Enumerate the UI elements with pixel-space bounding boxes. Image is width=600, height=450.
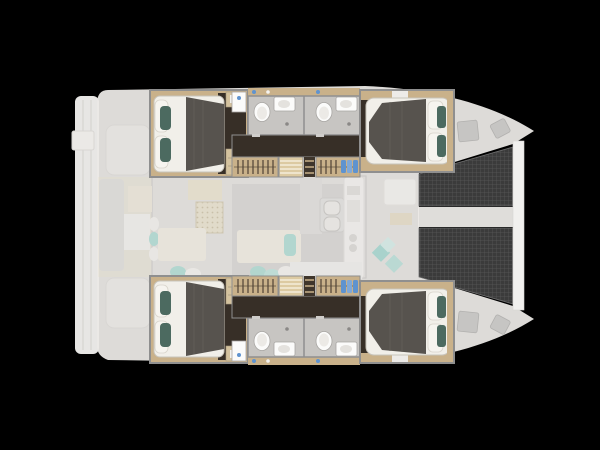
catamaran-floor-plan — [0, 0, 600, 450]
port-wardrobe-row — [232, 157, 360, 177]
shower-drain — [285, 122, 289, 126]
floor-plan-stage — [0, 0, 600, 450]
basin-bowl — [278, 100, 290, 108]
forward-crossbeam — [513, 141, 524, 310]
toilet-seat — [319, 107, 329, 120]
galley-item — [349, 244, 357, 252]
galley-item — [349, 234, 357, 242]
trampoline-center-walkway — [418, 207, 524, 227]
foredeck-sunpad — [384, 179, 416, 205]
bathroom-wood-trim — [248, 88, 360, 96]
corridor-vanity — [232, 92, 246, 112]
galley-counter-l — [300, 178, 322, 234]
port-corridor — [232, 134, 362, 157]
port-bathrooms — [232, 88, 360, 135]
companionway-steps — [279, 157, 303, 177]
headboard — [447, 96, 453, 166]
bed-blanket — [186, 97, 224, 171]
galley-sink-bowl — [324, 201, 340, 215]
door-threshold — [252, 134, 260, 137]
stern-davit — [72, 131, 94, 150]
swim-platform — [72, 96, 99, 354]
starboard-aft-deck-locker — [106, 278, 150, 328]
vanity-item — [237, 96, 241, 100]
bed-pillow-teal — [160, 106, 171, 130]
toiletry-item — [266, 90, 270, 94]
boat — [72, 86, 534, 365]
cockpit-cushion — [149, 247, 159, 261]
sofa-left — [158, 228, 206, 261]
corridor-floor — [232, 135, 362, 157]
bed-pillow-teal — [437, 106, 446, 128]
hanging-clothes — [347, 160, 352, 173]
galley-stove — [347, 200, 360, 222]
bed-pillow-teal — [160, 138, 171, 162]
hanging-clothes — [353, 160, 358, 173]
galley-appliance — [347, 186, 360, 195]
cockpit-cushion-teal — [149, 232, 159, 246]
basin-bowl — [340, 100, 352, 108]
shower-drain — [347, 122, 351, 126]
hanging-clothes — [341, 160, 346, 173]
chart-seat — [188, 180, 222, 200]
cockpit-cushion — [149, 217, 159, 231]
bed-pillow-teal — [437, 135, 446, 157]
sofa-teal-cushion — [284, 234, 296, 256]
toilet-seat — [257, 107, 267, 120]
galley-sink-bowl — [324, 217, 340, 231]
deck-hatch — [457, 120, 479, 142]
port-fore-cabin — [360, 90, 454, 172]
cockpit-seat — [128, 186, 152, 212]
toiletry-item — [316, 90, 320, 94]
port-aft-deck-locker — [106, 125, 150, 175]
toiletry-item — [252, 90, 256, 94]
cockpit-table — [124, 214, 150, 250]
foredeck-locker — [390, 213, 412, 225]
door-threshold — [316, 134, 324, 137]
cockpit-bench — [99, 179, 124, 271]
